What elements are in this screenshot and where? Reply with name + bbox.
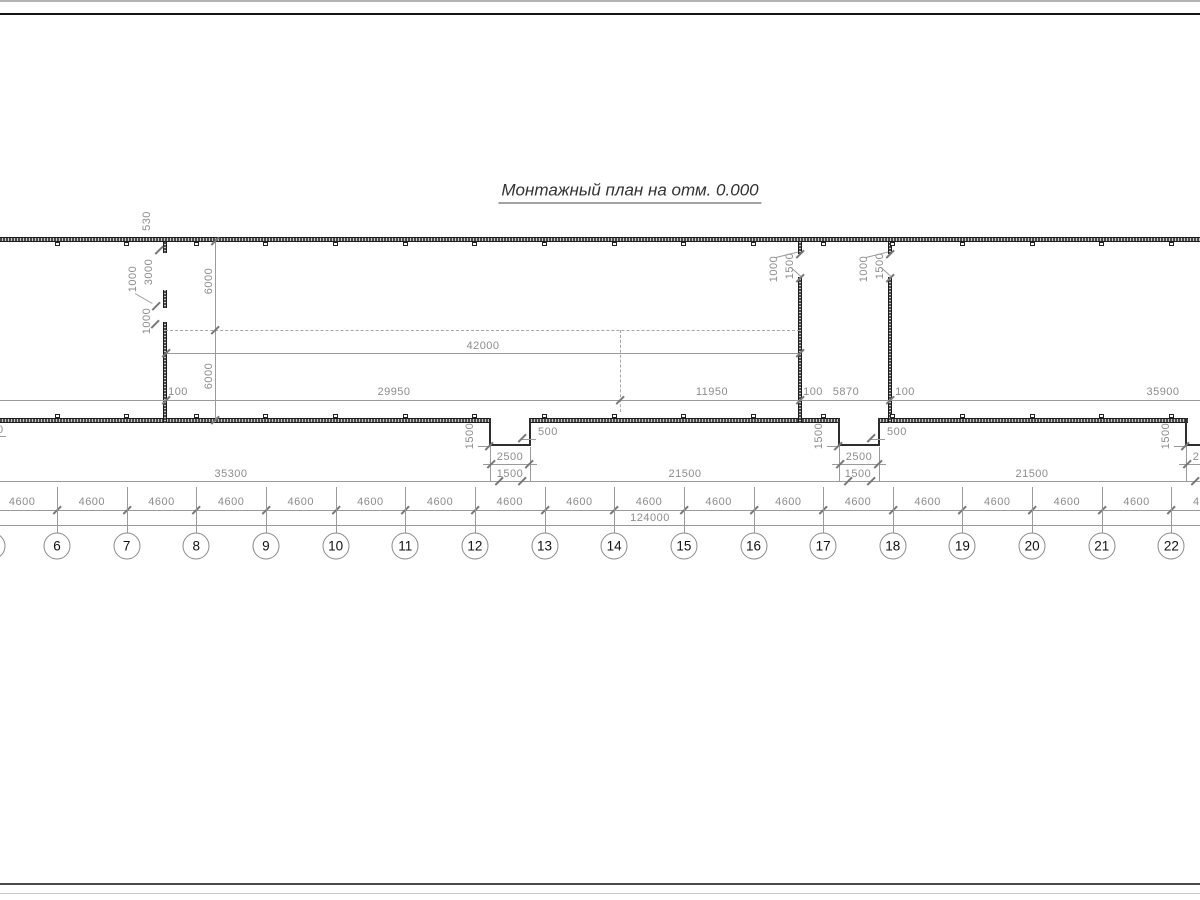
dim-label-100: 100 [895,386,915,398]
column-marker [55,242,60,246]
dim-line-total [0,525,1200,526]
floor-plan-canvas: Монтажный план на отм. 0.000 42000 6000 … [0,0,1200,900]
dim-label-4600: 4600 [218,496,244,508]
axis-bubble: 7 [113,533,140,560]
window-bottom-edge [0,893,1200,894]
dim-label-total-124000: 124000 [630,512,670,524]
column-marker [1099,414,1104,418]
axis-number: 15 [676,539,691,554]
wall-bottom [878,418,1188,423]
sheet-border-bottom [0,883,1200,885]
axis-bubble: 10 [322,533,349,560]
column-marker [890,242,895,246]
dim-label-4600: 4600 [1054,496,1080,508]
dim-label-4600: 4600 [566,496,592,508]
axis-stem [57,487,58,535]
clipped-edge-label: 0 [0,424,6,437]
notch-wall-bottom [838,444,880,446]
axis-number: 16 [746,539,761,554]
dashed-line-horizontal [165,330,800,331]
column-marker [55,414,60,418]
axis-number: 20 [1025,539,1040,554]
dim-line-spacing [0,510,1200,511]
column-marker [194,242,199,246]
axis-bubble: 9 [252,533,279,560]
dim-tick [152,302,161,311]
axis-stem [962,487,963,535]
axis-stem [1032,487,1033,535]
axis-number: 17 [816,539,831,554]
dim-label-stub-1000: 1000 [768,256,780,282]
axis-bubble: 11 [392,533,419,560]
axis-stem [266,487,267,535]
dim-label-4600: 4600 [775,496,801,508]
axis-number: 6 [53,539,61,554]
sheet-border-top [0,13,1200,15]
column-marker [821,414,826,418]
axis-stem [405,487,406,535]
dim-label-35900: 35900 [1146,386,1179,398]
wall-bottom [529,418,840,423]
dim-label-4600: 4600 [357,496,383,508]
dim-label-4600: 4600 [288,496,314,508]
axis-number: 22 [1164,539,1179,554]
axis-bubble: 12 [461,533,488,560]
column-marker [472,242,477,246]
column-marker [1030,414,1035,418]
column-marker [263,242,268,246]
column-marker [890,414,895,418]
dim-label-stub-1000: 1000 [858,256,870,282]
dim-label-2500: 2500 [1193,451,1200,463]
axis-number: 21 [1094,539,1109,554]
axis-bubble: 17 [810,533,837,560]
axis-bubble: 8 [183,533,210,560]
dim-label-opening-1500: 1500 [874,253,886,279]
axis-stem [893,487,894,535]
column-marker [960,242,965,246]
axis-number: 14 [607,539,622,554]
axis-stem [196,487,197,535]
column-marker [194,414,199,418]
axis-bubble: 19 [949,533,976,560]
window-top-edge [0,0,1200,2]
notch-wall-right [529,418,531,446]
dim-extension-line [879,447,880,482]
dim-label-4600: 4600 [427,496,453,508]
axis-stem [823,487,824,535]
column-marker [1169,414,1174,418]
axis-stem [127,487,128,535]
dim-label-4600: 4600 [914,496,940,508]
dim-label-bay-lower-6000: 6000 [203,363,215,389]
dim-label-500: 500 [887,426,907,438]
column-marker [403,414,408,418]
dim-label-opening-1500: 1500 [784,253,796,279]
axis-stem [614,487,615,535]
dim-label-500: 500 [538,426,558,438]
axis-bubble: 16 [740,533,767,560]
axis-stem [754,487,755,535]
column-marker [263,414,268,418]
dim-label-11950: 11950 [696,386,728,398]
axis-stem [545,487,546,535]
axis-bubble: 13 [531,533,558,560]
wall-left-vertical [163,322,167,423]
dim-label-4600: 4600 [1123,496,1149,508]
dim-line-row1 [0,400,1200,401]
dim-label-4600: 4600 [496,496,522,508]
column-marker [542,414,547,418]
column-marker [333,242,338,246]
column-marker [612,414,617,418]
dim-label-4600: 4600 [148,496,174,508]
dim-label-100: 100 [803,386,823,398]
leader-line [135,293,153,304]
axis-bubble: 22 [1158,533,1185,560]
dim-label-notch-depth-1500: 1500 [1160,423,1172,449]
axis-bubble: 18 [879,533,906,560]
column-marker [124,242,129,246]
column-marker [333,414,338,418]
wall-left-vertical [163,242,167,253]
dim-label-4600: 4600 [79,496,105,508]
dim-label-4600: 4600 [984,496,1010,508]
wall-left-vertical [163,290,167,308]
dim-line-2500 [1179,464,1200,465]
dim-label-notch-depth-1500: 1500 [464,423,476,449]
dim-label-29950: 29950 [377,386,410,398]
dim-label-1000b: 1000 [141,308,153,334]
dim-label-2500: 2500 [497,451,523,463]
axis-number: 7 [123,539,131,554]
axis-bubble: 15 [670,533,697,560]
dim-label-bay-upper-6000: 6000 [203,268,215,294]
column-marker [821,242,826,246]
column-marker [751,414,756,418]
axis-number: 10 [328,539,343,554]
column-marker [1030,242,1035,246]
dim-label-4600: 4600 [636,496,662,508]
axis-bubble: 6 [44,533,71,560]
dim-line [522,439,537,440]
column-marker [751,242,756,246]
dim-label-100: 100 [168,386,188,398]
column-marker [1099,242,1104,246]
notch-wall-bottom [489,444,531,446]
dim-line-42000 [166,353,800,354]
axis-bubble: 5 [0,533,6,560]
axis-stem [684,487,685,535]
dim-label-4600: 4600 [845,496,871,508]
axis-stem [475,487,476,535]
axis-number: 18 [885,539,900,554]
dim-label-35300: 35300 [214,468,247,480]
column-marker [472,414,477,418]
axis-number: 8 [193,539,201,554]
plan-title: Монтажный план на отм. 0.000 [498,181,761,204]
axis-stem [336,487,337,535]
dim-label-3000: 3000 [143,259,155,285]
dim-extension-line [530,447,531,482]
dim-label-21500: 21500 [668,468,701,480]
dim-label-4600: 4600 [705,496,731,508]
axis-stem [1171,487,1172,535]
wall-bottom [0,418,491,423]
dim-label-4600: 4600 [1193,496,1200,508]
axis-bubble: 20 [1019,533,1046,560]
axis-number: 9 [262,539,270,554]
dim-label-1000a: 1000 [127,266,139,292]
axis-number: 19 [955,539,970,554]
dim-label-530: 530 [141,211,153,231]
column-marker [1169,242,1174,246]
notch-wall-right [878,418,880,446]
dim-label-notch-depth-1500: 1500 [813,423,825,449]
dim-label-overall-42000: 42000 [466,340,499,352]
axis-bubble: 21 [1088,533,1115,560]
column-marker [403,242,408,246]
column-marker [681,242,686,246]
axis-bubble: 14 [601,533,628,560]
dim-label-2500: 2500 [846,451,872,463]
column-marker [542,242,547,246]
dim-line [871,439,886,440]
axis-number: 12 [467,539,482,554]
column-marker [681,414,686,418]
axis-number: 11 [398,539,412,554]
wall-top [0,237,1200,242]
column-marker [960,414,965,418]
column-marker [612,242,617,246]
axis-stem [1102,487,1103,535]
axis-number: 13 [537,539,552,554]
dim-line-row2 [0,481,1200,482]
dim-label-5870: 5870 [833,386,859,398]
dim-label-21500: 21500 [1015,468,1048,480]
column-marker [124,414,129,418]
dim-label-4600: 4600 [9,496,35,508]
